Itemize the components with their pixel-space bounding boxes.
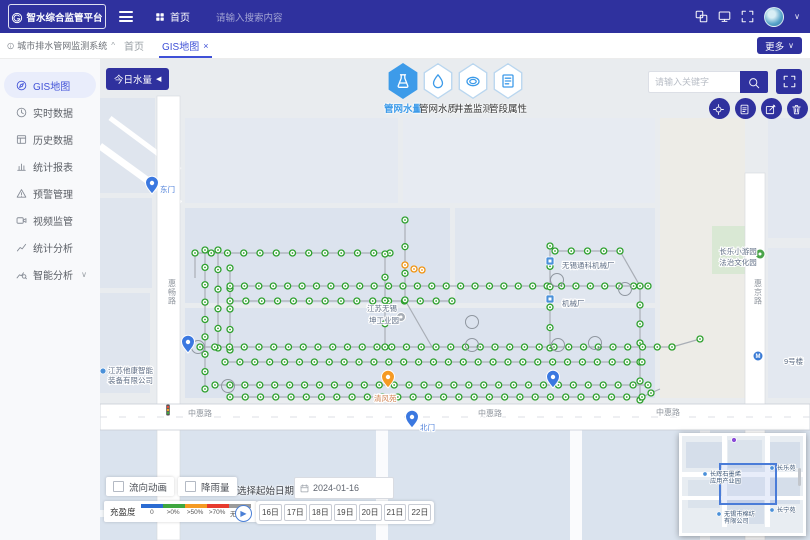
- chevron-down-icon: ∨: [788, 41, 794, 50]
- sidebar-item-1[interactable]: 实时数据: [4, 99, 96, 125]
- map-container: M 东门北门清风苑无锡通科机械厂机械厂江苏无锡坤工业园长乐小游园法治文化园江苏他…: [100, 58, 810, 540]
- legend-item: >70%: [207, 504, 229, 519]
- sidebar-item-3[interactable]: 统计报表: [4, 153, 96, 179]
- svg-text:机械厂: 机械厂: [562, 298, 585, 308]
- sidebar: GIS地图实时数据历史数据统计报表预警管理视频监管统计分析智能分析∨: [0, 58, 100, 540]
- sidebar-item-label: 智能分析: [33, 267, 73, 282]
- info-icon: [7, 41, 14, 51]
- svg-text:中惠路: 中惠路: [188, 408, 212, 418]
- clear-icon: [791, 102, 804, 115]
- rainfall-checkbox[interactable]: 降雨量: [178, 477, 237, 496]
- home-grid-icon: [155, 12, 165, 22]
- report-icon: [16, 161, 27, 172]
- sidebar-item-label: 历史数据: [33, 132, 73, 147]
- sidebar-item-5[interactable]: 视频监管: [4, 207, 96, 233]
- menu-toggle-button[interactable]: [119, 9, 133, 25]
- header-search: [214, 8, 338, 26]
- layer-button-0[interactable]: 管网水量: [386, 63, 420, 115]
- svg-text:装备有限公司: 装备有限公司: [108, 375, 153, 385]
- day-button-22日[interactable]: 22日: [408, 504, 431, 521]
- system-title: 城市排水管网监测系统: [17, 39, 107, 52]
- locate-icon: [713, 102, 726, 115]
- minimap-purple-marker: [732, 438, 737, 443]
- legend-title: 充盈度: [110, 506, 136, 518]
- nav-home[interactable]: 首页: [155, 9, 190, 24]
- day-button-21日[interactable]: 21日: [384, 504, 407, 521]
- sidebar-item-label: GIS地图: [33, 78, 70, 93]
- warning-icon: [16, 188, 27, 199]
- day-button-19日[interactable]: 19日: [334, 504, 357, 521]
- sidebar-item-label: 统计报表: [33, 159, 73, 174]
- sidebar-item-0[interactable]: GIS地图: [4, 72, 96, 98]
- chevron-down-icon: ∨: [81, 270, 87, 279]
- svg-text:北门: 北门: [420, 423, 435, 432]
- sidebar-item-4[interactable]: 预警管理: [4, 180, 96, 206]
- overview-minimap[interactable]: 长辉石墨烯应用产业园长乐苑无锡市棉纺有限公司长宁苑: [679, 433, 806, 536]
- gis-map-icon: [16, 80, 27, 91]
- play-button[interactable]: ▶: [235, 505, 252, 522]
- keyword-search-input[interactable]: [648, 71, 740, 93]
- water-volume-icon: [389, 65, 418, 98]
- user-menu-caret-icon[interactable]: ∨: [794, 12, 800, 21]
- annotate-button[interactable]: [761, 98, 782, 119]
- report-button[interactable]: [735, 98, 756, 119]
- svg-text:惠京路: 惠京路: [754, 278, 762, 306]
- svg-text:惠畅路: 惠畅路: [168, 278, 176, 306]
- map-search: [648, 71, 768, 93]
- sidebar-item-label: 视频监管: [33, 213, 73, 228]
- tab-bar: 城市排水管网监测系统 ^ 首页 GIS地图 × 更多 ∨: [0, 33, 810, 59]
- more-button[interactable]: 更多 ∨: [757, 37, 802, 54]
- report-doc-icon: [739, 102, 752, 115]
- smart-analysis-icon: [16, 269, 27, 280]
- date-value: 2024-01-16: [313, 483, 359, 493]
- sidebar-item-label: 统计分析: [33, 240, 73, 255]
- svg-text:江苏无锡: 江苏无锡: [367, 303, 397, 313]
- tab-gis-map[interactable]: GIS地图 ×: [153, 33, 218, 58]
- svg-text:M: M: [756, 354, 761, 360]
- tab-home[interactable]: 首页: [115, 33, 153, 58]
- day-button-18日[interactable]: 18日: [309, 504, 332, 521]
- svg-text:无锡通科机械厂: 无锡通科机械厂: [562, 260, 615, 270]
- cast-icon[interactable]: [695, 10, 708, 23]
- logo-icon: [11, 11, 23, 23]
- day-button-strip: 16日17日18日19日20日21日22日: [256, 501, 434, 524]
- search-button[interactable]: [740, 71, 768, 93]
- checkbox-icon: [113, 481, 124, 492]
- legend-item: >50%: [185, 504, 207, 519]
- stat-analysis-icon: [16, 242, 27, 253]
- system-switcher[interactable]: 城市排水管网监测系统 ^: [0, 39, 115, 52]
- minimap-scrollbar[interactable]: [798, 468, 801, 486]
- layer-button-1[interactable]: 管网水质: [421, 63, 455, 115]
- svg-text:坤工业园: 坤工业园: [369, 315, 399, 325]
- minimap-canvas: 长辉石墨烯应用产业园长乐苑无锡市棉纺有限公司长宁苑: [682, 436, 803, 527]
- calendar-icon: [300, 484, 309, 493]
- sidebar-item-6[interactable]: 统计分析: [4, 234, 96, 260]
- svg-text:东门: 东门: [160, 184, 175, 194]
- locate-button[interactable]: [709, 98, 730, 119]
- svg-text:9号楼: 9号楼: [784, 356, 804, 366]
- today-water-button[interactable]: 今日水量 ◀: [106, 68, 169, 90]
- legend-item: >0%: [163, 504, 185, 519]
- checkbox-icon: [185, 481, 196, 492]
- water-quality-icon: [424, 65, 453, 98]
- legend-item: 0: [141, 504, 163, 519]
- expand-icon: [783, 75, 796, 88]
- close-tab-icon[interactable]: ×: [203, 41, 208, 51]
- pipe-attr-icon: [494, 65, 523, 98]
- layer-button-2[interactable]: 井盖监测: [456, 63, 490, 115]
- fullness-legend: 充盈度 0>0%>50%>70%无数据: [104, 501, 257, 522]
- fullscreen-icon[interactable]: [741, 10, 754, 23]
- svg-text:中惠路: 中惠路: [478, 408, 502, 418]
- header-search-input[interactable]: [214, 12, 338, 25]
- realtime-icon: [16, 107, 27, 118]
- sidebar-item-label: 实时数据: [33, 105, 73, 120]
- nav-home-label: 首页: [170, 9, 190, 24]
- svg-text:法治文化园: 法治文化园: [719, 257, 757, 267]
- layer-button-3[interactable]: 管段属性: [491, 63, 525, 115]
- svg-text:长乐小游园: 长乐小游园: [719, 246, 757, 256]
- layer-toolbar: 管网水量管网水质井盖监测管段属性: [386, 63, 525, 115]
- manhole-icon: [459, 65, 488, 98]
- history-icon: [16, 134, 27, 145]
- search-icon: [748, 76, 761, 89]
- map-fullscreen-button[interactable]: [776, 69, 802, 94]
- svg-text:中惠路: 中惠路: [656, 407, 680, 417]
- monitor-icon[interactable]: [718, 10, 731, 23]
- svg-text:清风苑: 清风苑: [374, 393, 397, 403]
- svg-text:江苏他康智能: 江苏他康智能: [108, 365, 153, 375]
- svg-text:长乐苑: 长乐苑: [777, 464, 796, 472]
- date-picker-label: 选择起始日期: [237, 483, 294, 497]
- map-tool-buttons: [709, 98, 808, 119]
- svg-text:长宁苑: 长宁苑: [777, 506, 796, 514]
- collapse-left-icon: ◀: [156, 75, 161, 83]
- day-button-16日[interactable]: 16日: [259, 504, 282, 521]
- app-header: 智水综合监管平台 首页 ∨: [0, 0, 810, 33]
- video-icon: [16, 215, 27, 226]
- flow-animation-checkbox[interactable]: 流向动画: [106, 477, 174, 496]
- date-picker-input[interactable]: 2024-01-16: [294, 477, 394, 499]
- sidebar-item-2[interactable]: 历史数据: [4, 126, 96, 152]
- app-title: 智水综合监管平台: [26, 10, 102, 24]
- day-button-17日[interactable]: 17日: [284, 504, 307, 521]
- sidebar-item-7[interactable]: 智能分析∨: [4, 261, 96, 287]
- day-button-20日[interactable]: 20日: [359, 504, 382, 521]
- sidebar-item-label: 预警管理: [33, 186, 73, 201]
- app-logo: 智水综合监管平台: [8, 4, 106, 29]
- clear-button[interactable]: [787, 98, 808, 119]
- user-avatar[interactable]: [764, 7, 784, 27]
- svg-text:长辉石墨烯应用产业园: 长辉石墨烯应用产业园: [710, 470, 741, 485]
- annotate-icon: [765, 102, 778, 115]
